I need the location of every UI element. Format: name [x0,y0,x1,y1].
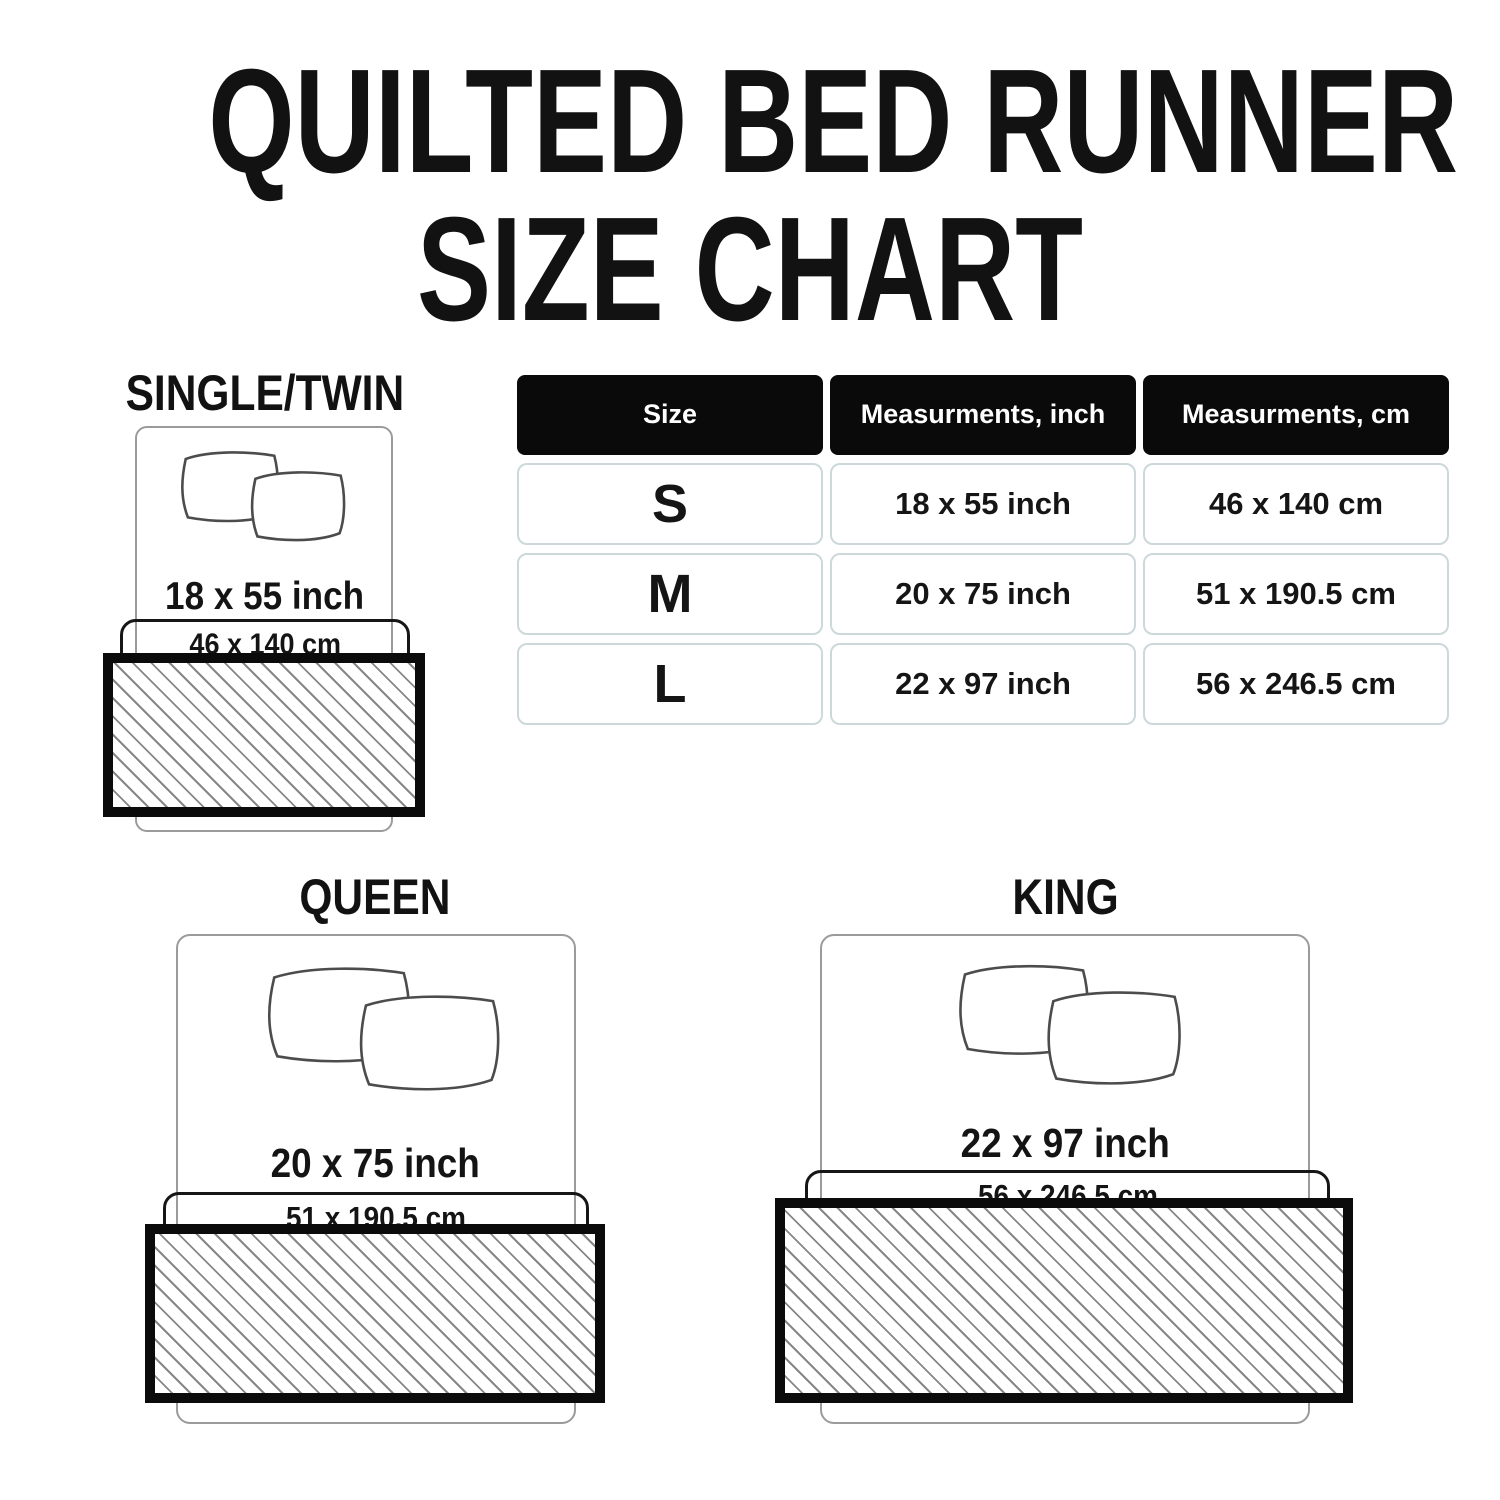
bed-runner-swatch-queen [145,1224,605,1403]
table-header-inch: Measurments, inch [830,375,1136,455]
page-title-line-1: QUILTED BED RUNNER [0,48,1500,196]
diagram-label-single-twin: SINGLE/TWIN [80,368,450,418]
table-cell-size-l: L [517,643,823,725]
pillow-icon [246,466,350,545]
page-title-text-2: SIZE CHART [417,196,1083,344]
size-table: Size Measurments, inch Measurments, cm S… [517,375,1449,725]
page-title-text-1: QUILTED BED RUNNER [208,48,1458,196]
table-cell-cm-s: 46 x 140 cm [1143,463,1449,545]
bed-runner-swatch-single-twin [103,653,425,817]
table-cell-cm-m: 51 x 190.5 cm [1143,553,1449,635]
table-cell-inch-m: 20 x 75 inch [830,553,1136,635]
pillow-icon [352,988,507,1096]
table-cell-size-m: M [517,553,823,635]
table-cell-size-s: S [517,463,823,545]
bed-runner-swatch-king [775,1198,1353,1403]
table-header-cm: Measurments, cm [1143,375,1449,455]
table-header-size: Size [517,375,823,455]
inch-size-label-king: 22 x 97 inch [815,1123,1315,1164]
table-cell-inch-s: 18 x 55 inch [830,463,1136,545]
table-cell-cm-l: 56 x 246.5 cm [1143,643,1449,725]
pillow-icon [1040,984,1188,1090]
page-title-line-2: SIZE CHART [0,196,1500,344]
table-cell-inch-l: 22 x 97 inch [830,643,1136,725]
diagram-label-king: KING [815,872,1315,922]
inch-size-label-queen: 20 x 75 inch [175,1143,575,1184]
size-chart-infographic: QUILTED BED RUNNER SIZE CHART SINGLE/TWI… [0,0,1500,1500]
diagram-label-queen: QUEEN [175,872,575,922]
inch-size-label-single-twin: 18 x 55 inch [80,577,450,616]
